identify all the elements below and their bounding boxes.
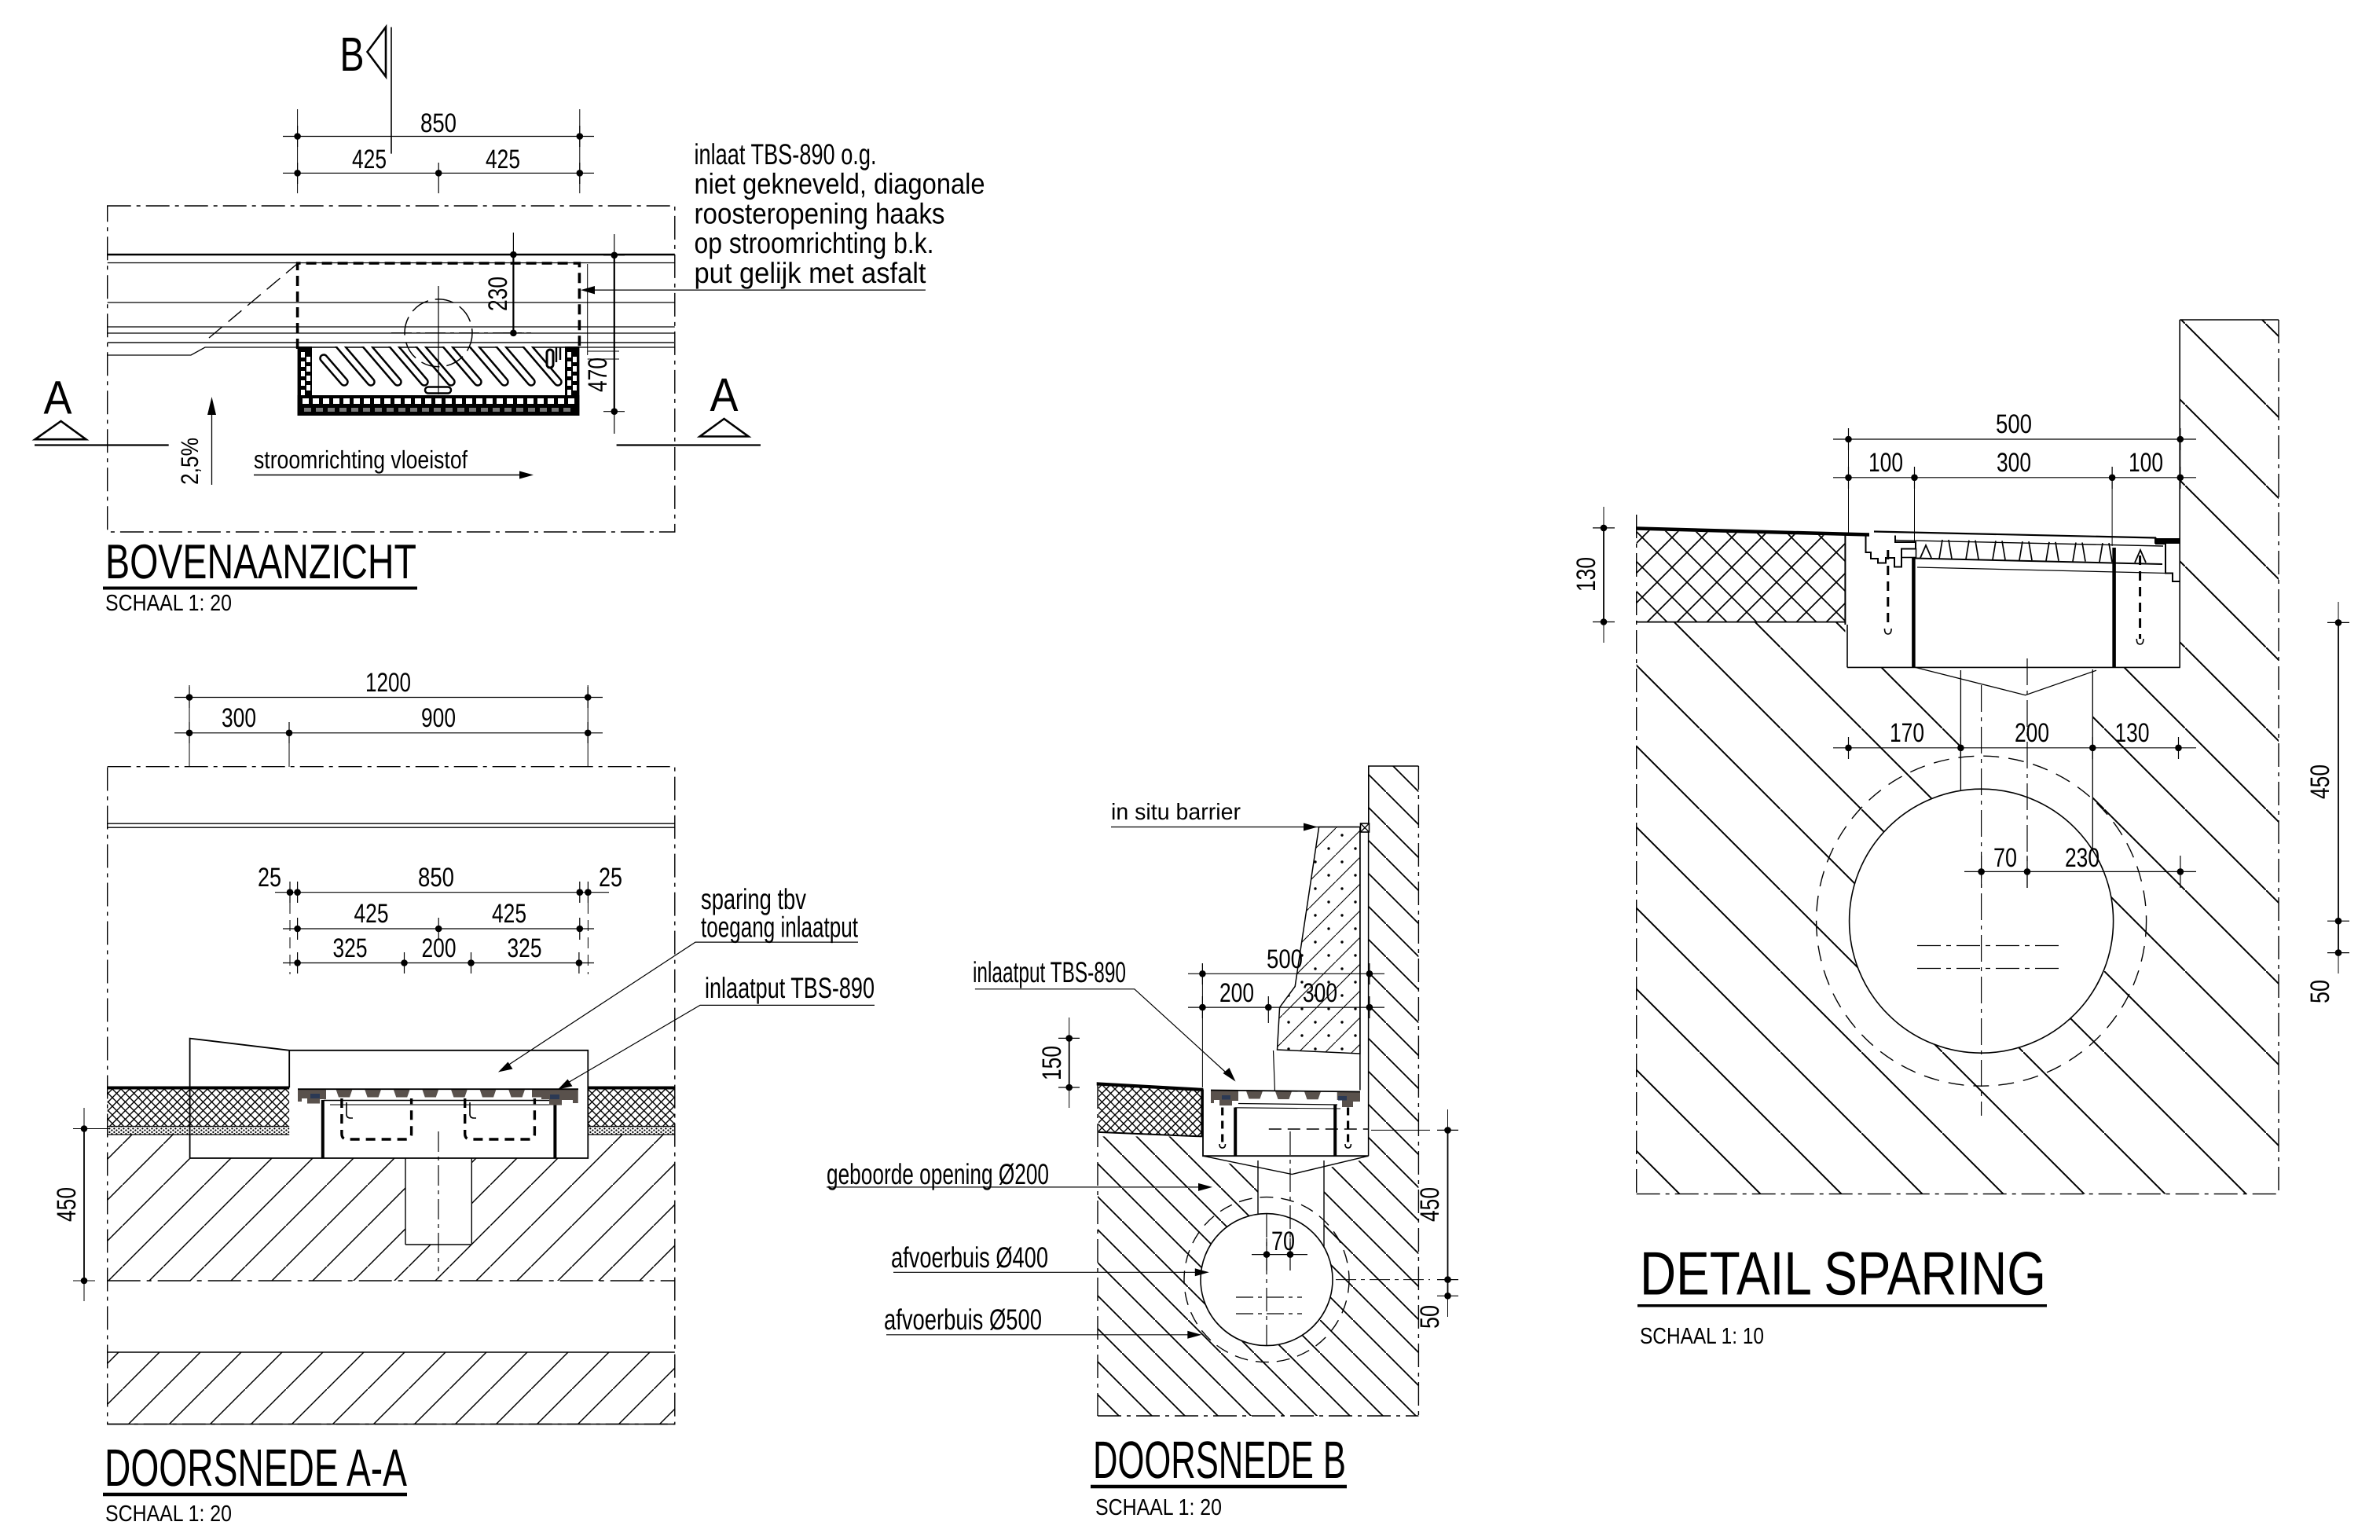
svg-text:op stroomrichting b.k.: op stroomrichting b.k.: [695, 227, 934, 259]
svg-text:230: 230: [483, 277, 513, 311]
svg-text:170: 170: [1890, 718, 1924, 748]
svg-text:425: 425: [354, 899, 389, 929]
svg-text:50: 50: [1415, 1305, 1445, 1329]
svg-text:SCHAAL 1: 20: SCHAAL 1: 20: [105, 591, 232, 616]
svg-text:100: 100: [2129, 448, 2163, 478]
svg-text:geboorde opening Ø200: geboorde opening Ø200: [827, 1158, 1049, 1190]
svg-text:450: 450: [52, 1187, 82, 1222]
svg-text:inlaat TBS-890 o.g.: inlaat TBS-890 o.g.: [695, 138, 877, 170]
svg-text:450: 450: [1415, 1187, 1445, 1222]
svg-text:niet gekneveld, diagonale: niet gekneveld, diagonale: [695, 168, 985, 200]
svg-text:470: 470: [583, 357, 613, 392]
svg-text:850: 850: [420, 108, 457, 138]
svg-text:25: 25: [258, 863, 281, 893]
svg-text:afvoerbuis Ø500: afvoerbuis Ø500: [884, 1303, 1042, 1336]
svg-text:70: 70: [1271, 1226, 1295, 1256]
svg-text:BOVENAANZICHT: BOVENAANZICHT: [105, 535, 416, 589]
svg-text:2,5%: 2,5%: [176, 438, 204, 485]
svg-text:450: 450: [2305, 764, 2335, 799]
svg-text:425: 425: [492, 899, 526, 929]
svg-text:500: 500: [1267, 944, 1303, 974]
svg-text:230: 230: [2065, 843, 2099, 873]
svg-text:130: 130: [1571, 557, 1601, 592]
svg-text:DOORSNEDE A-A: DOORSNEDE A-A: [105, 1439, 407, 1498]
svg-text:A: A: [710, 368, 739, 421]
svg-text:DETAIL SPARING: DETAIL SPARING: [1640, 1239, 2046, 1308]
svg-text:300: 300: [1997, 448, 2031, 478]
svg-text:325: 325: [508, 933, 542, 963]
svg-text:SCHAAL 1: 20: SCHAAL 1: 20: [105, 1501, 232, 1527]
svg-text:DOORSNEDE B: DOORSNEDE B: [1093, 1431, 1346, 1490]
svg-text:25: 25: [599, 863, 622, 893]
svg-text:425: 425: [486, 145, 520, 174]
svg-text:afvoerbuis Ø400: afvoerbuis Ø400: [891, 1241, 1048, 1274]
svg-text:1200: 1200: [365, 668, 411, 698]
svg-text:put gelijk met asfalt: put gelijk met asfalt: [695, 257, 927, 289]
svg-text:425: 425: [352, 145, 387, 174]
svg-text:SCHAAL 1: 20: SCHAAL 1: 20: [1095, 1495, 1222, 1520]
svg-text:50: 50: [2305, 980, 2335, 1003]
svg-text:850: 850: [418, 863, 454, 893]
svg-text:inlaatput TBS-890: inlaatput TBS-890: [973, 956, 1126, 988]
svg-text:70: 70: [1993, 843, 2017, 873]
svg-text:B: B: [340, 27, 365, 81]
svg-text:200: 200: [1219, 978, 1254, 1008]
svg-text:roosteropening haaks: roosteropening haaks: [695, 197, 945, 229]
svg-text:100: 100: [1868, 448, 1903, 478]
svg-text:inlaatput TBS-890: inlaatput TBS-890: [705, 972, 875, 1004]
svg-text:toegang inlaatput: toegang inlaatput: [701, 911, 859, 944]
svg-text:900: 900: [421, 703, 456, 733]
svg-text:300: 300: [222, 703, 256, 733]
svg-text:130: 130: [2115, 718, 2150, 748]
svg-text:200: 200: [2015, 718, 2049, 748]
svg-text:in situ barrier: in situ barrier: [1111, 800, 1241, 825]
svg-text:325: 325: [333, 933, 368, 963]
svg-text:stroomrichting vloeistof: stroomrichting vloeistof: [254, 445, 468, 474]
svg-text:SCHAAL 1: 10: SCHAAL 1: 10: [1640, 1324, 1764, 1349]
svg-text:500: 500: [1996, 409, 2032, 439]
svg-text:150: 150: [1037, 1046, 1067, 1080]
svg-text:300: 300: [1303, 978, 1337, 1008]
svg-text:A: A: [44, 372, 72, 424]
svg-text:200: 200: [422, 933, 457, 963]
